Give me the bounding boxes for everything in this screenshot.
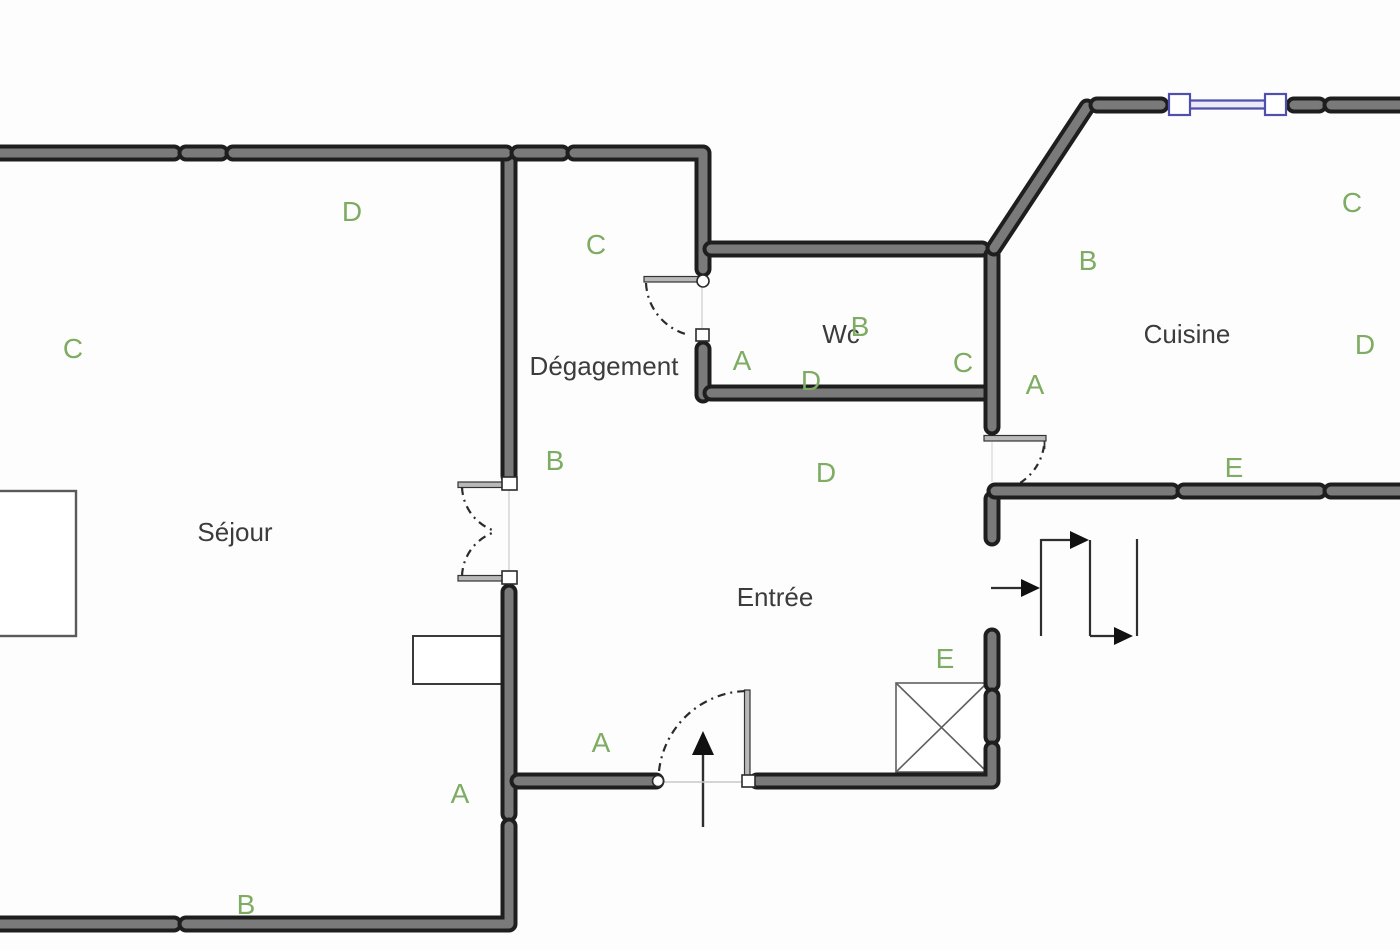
svg-text:B: B [546, 445, 565, 476]
svg-text:A: A [451, 778, 470, 809]
svg-text:Cuisine: Cuisine [1144, 319, 1231, 349]
svg-text:Séjour: Séjour [197, 517, 272, 547]
svg-text:A: A [592, 727, 611, 758]
svg-text:D: D [342, 196, 362, 227]
svg-text:C: C [586, 229, 606, 260]
svg-text:Entrée: Entrée [737, 582, 814, 612]
svg-text:C: C [63, 333, 83, 364]
svg-text:E: E [936, 643, 955, 674]
svg-text:B: B [851, 311, 870, 342]
svg-text:Dégagement: Dégagement [530, 351, 680, 381]
svg-text:A: A [1026, 369, 1045, 400]
svg-text:D: D [1355, 329, 1375, 360]
svg-text:D: D [816, 457, 836, 488]
svg-text:A: A [733, 345, 752, 376]
svg-text:C: C [1342, 187, 1362, 218]
svg-text:B: B [237, 889, 256, 920]
svg-text:B: B [1079, 245, 1098, 276]
svg-text:E: E [1225, 452, 1244, 483]
svg-text:C: C [953, 347, 973, 378]
svg-text:D: D [801, 365, 821, 396]
